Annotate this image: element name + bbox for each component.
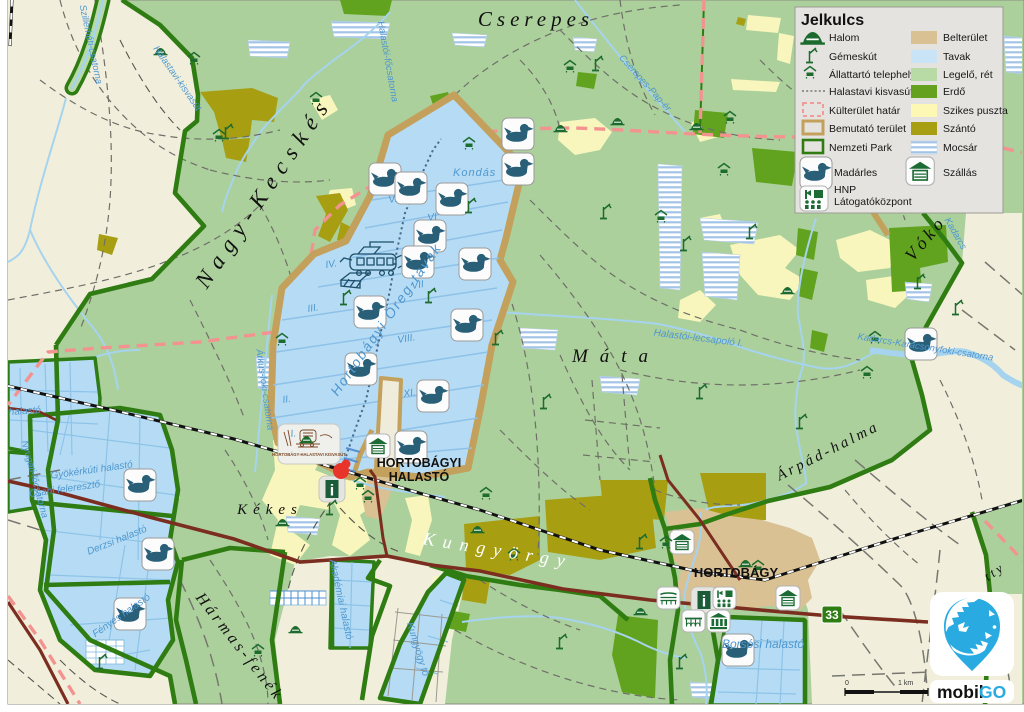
svg-text:Cserepes: Cserepes [478, 7, 594, 31]
svg-text:GO: GO [979, 682, 1006, 702]
svg-text:Szállás: Szállás [943, 167, 977, 179]
svg-text:Szikes puszta: Szikes puszta [943, 105, 1008, 117]
svg-text:Erdő: Erdő [943, 86, 965, 98]
svg-text:Máta: Máta [571, 346, 660, 367]
svg-text:mobil: mobil [937, 682, 984, 702]
svg-text:Legelő, rét: Legelő, rét [943, 69, 993, 81]
svg-text:HORTOBÁGY: HORTOBÁGY [694, 565, 779, 580]
svg-text:Mocsár: Mocsár [943, 142, 978, 154]
svg-text:II.: II. [282, 394, 292, 406]
svg-text:VI: VI [427, 212, 438, 224]
svg-text:0: 0 [845, 680, 849, 687]
svg-text:Halastavi kisvasút: Halastavi kisvasút [829, 86, 913, 98]
svg-text:Gémeskút: Gémeskút [829, 51, 877, 63]
svg-text:Madárles: Madárles [834, 167, 877, 179]
svg-text:IV.: IV. [325, 258, 338, 271]
svg-text:Tavak: Tavak [943, 51, 971, 63]
svg-text:Bemutató terület: Bemutató terület [829, 123, 906, 135]
svg-text:Külterület határ: Külterület határ [829, 105, 901, 117]
svg-text:33: 33 [825, 608, 839, 622]
svg-text:Nemzeti Park: Nemzeti Park [829, 142, 893, 154]
svg-text:VII: VII [411, 279, 425, 292]
svg-text:HNP: HNP [834, 184, 856, 196]
svg-text:Borsósi halastó: Borsósi halastó [722, 637, 804, 651]
svg-text:Halom: Halom [829, 32, 860, 44]
svg-text:HORTOBÁGY-HALASTAVI KISVASÚT: HORTOBÁGY-HALASTAVI KISVASÚT [272, 452, 346, 457]
svg-text:Látogatóközpont: Látogatóközpont [834, 196, 912, 208]
svg-text:V.: V. [388, 194, 398, 206]
svg-text:III.: III. [307, 302, 320, 315]
svg-text:Jelkulcs: Jelkulcs [801, 12, 864, 29]
svg-text:Kondás: Kondás [453, 167, 496, 179]
svg-text:Állattartó telephely: Állattartó telephely [829, 68, 916, 81]
svg-text:Szántó: Szántó [943, 123, 976, 135]
svg-text:XI.: XI. [402, 387, 417, 400]
svg-text:Kékes: Kékes [236, 502, 303, 518]
svg-text:1 km: 1 km [898, 680, 913, 687]
svg-text:HORTOBÁGYI: HORTOBÁGYI [377, 455, 462, 470]
svg-text:halastó: halastó [8, 405, 41, 418]
svg-text:Belterület: Belterület [943, 32, 987, 44]
svg-text:HALASTÓ: HALASTÓ [389, 469, 450, 484]
